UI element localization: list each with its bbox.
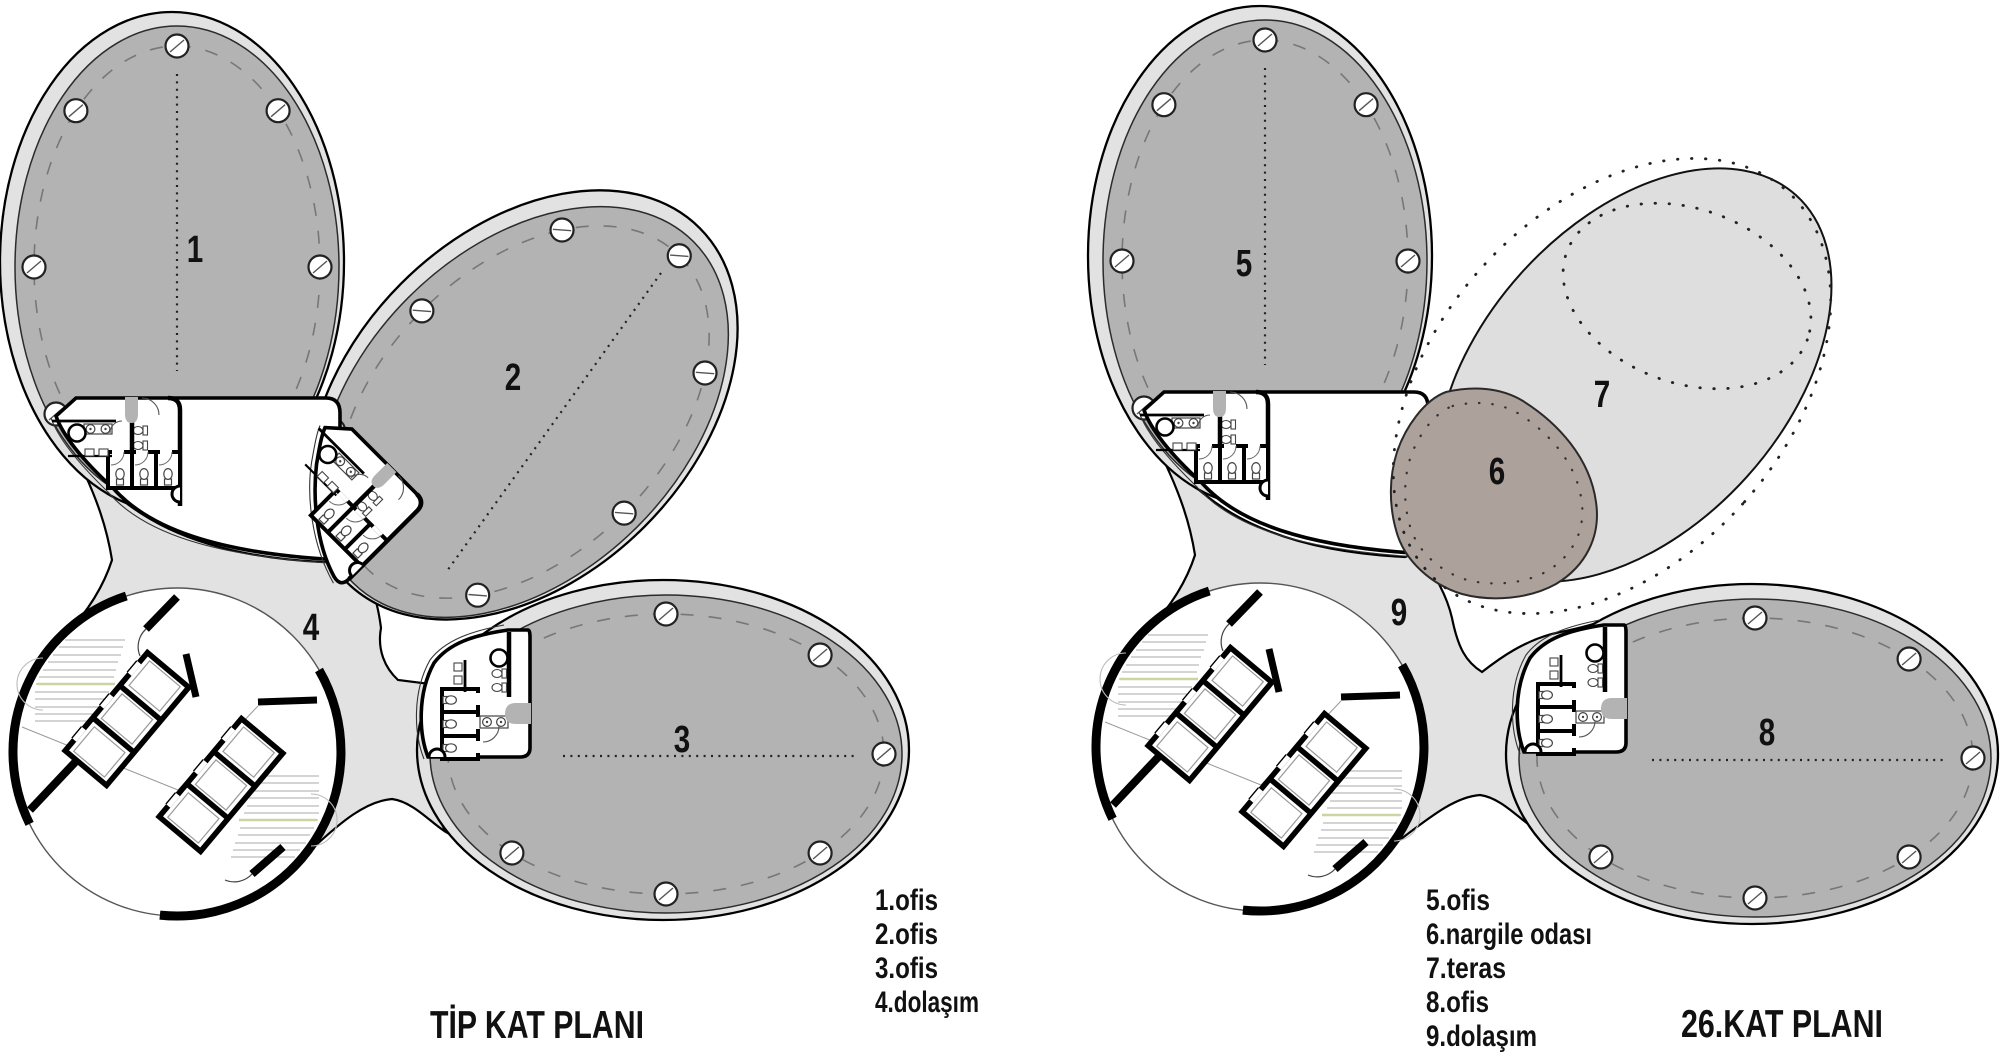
- svg-text:2.ofis: 2.ofis: [875, 918, 938, 951]
- svg-text:26.KAT PLANI: 26.KAT PLANI: [1681, 1003, 1883, 1046]
- svg-text:9: 9: [1391, 592, 1407, 634]
- svg-text:9.dolaşım: 9.dolaşım: [1426, 1020, 1537, 1053]
- svg-text:5: 5: [1236, 243, 1252, 285]
- svg-text:2: 2: [505, 357, 521, 399]
- svg-text:6: 6: [1489, 451, 1505, 493]
- svg-text:8.ofis: 8.ofis: [1426, 986, 1489, 1019]
- svg-text:5.ofis: 5.ofis: [1426, 884, 1490, 917]
- svg-text:7: 7: [1594, 374, 1610, 416]
- svg-text:4.dolaşım: 4.dolaşım: [875, 986, 979, 1019]
- svg-text:8: 8: [1759, 712, 1775, 754]
- svg-text:1.ofis: 1.ofis: [875, 884, 938, 917]
- svg-text:4: 4: [303, 607, 320, 649]
- svg-text:7.teras: 7.teras: [1426, 952, 1506, 985]
- svg-text:3: 3: [674, 719, 690, 761]
- svg-text:3.ofis: 3.ofis: [875, 952, 938, 985]
- svg-text:6.nargile odası: 6.nargile odası: [1426, 918, 1592, 951]
- svg-text:TİP KAT PLANI: TİP KAT PLANI: [430, 1004, 644, 1047]
- svg-text:1: 1: [187, 229, 203, 271]
